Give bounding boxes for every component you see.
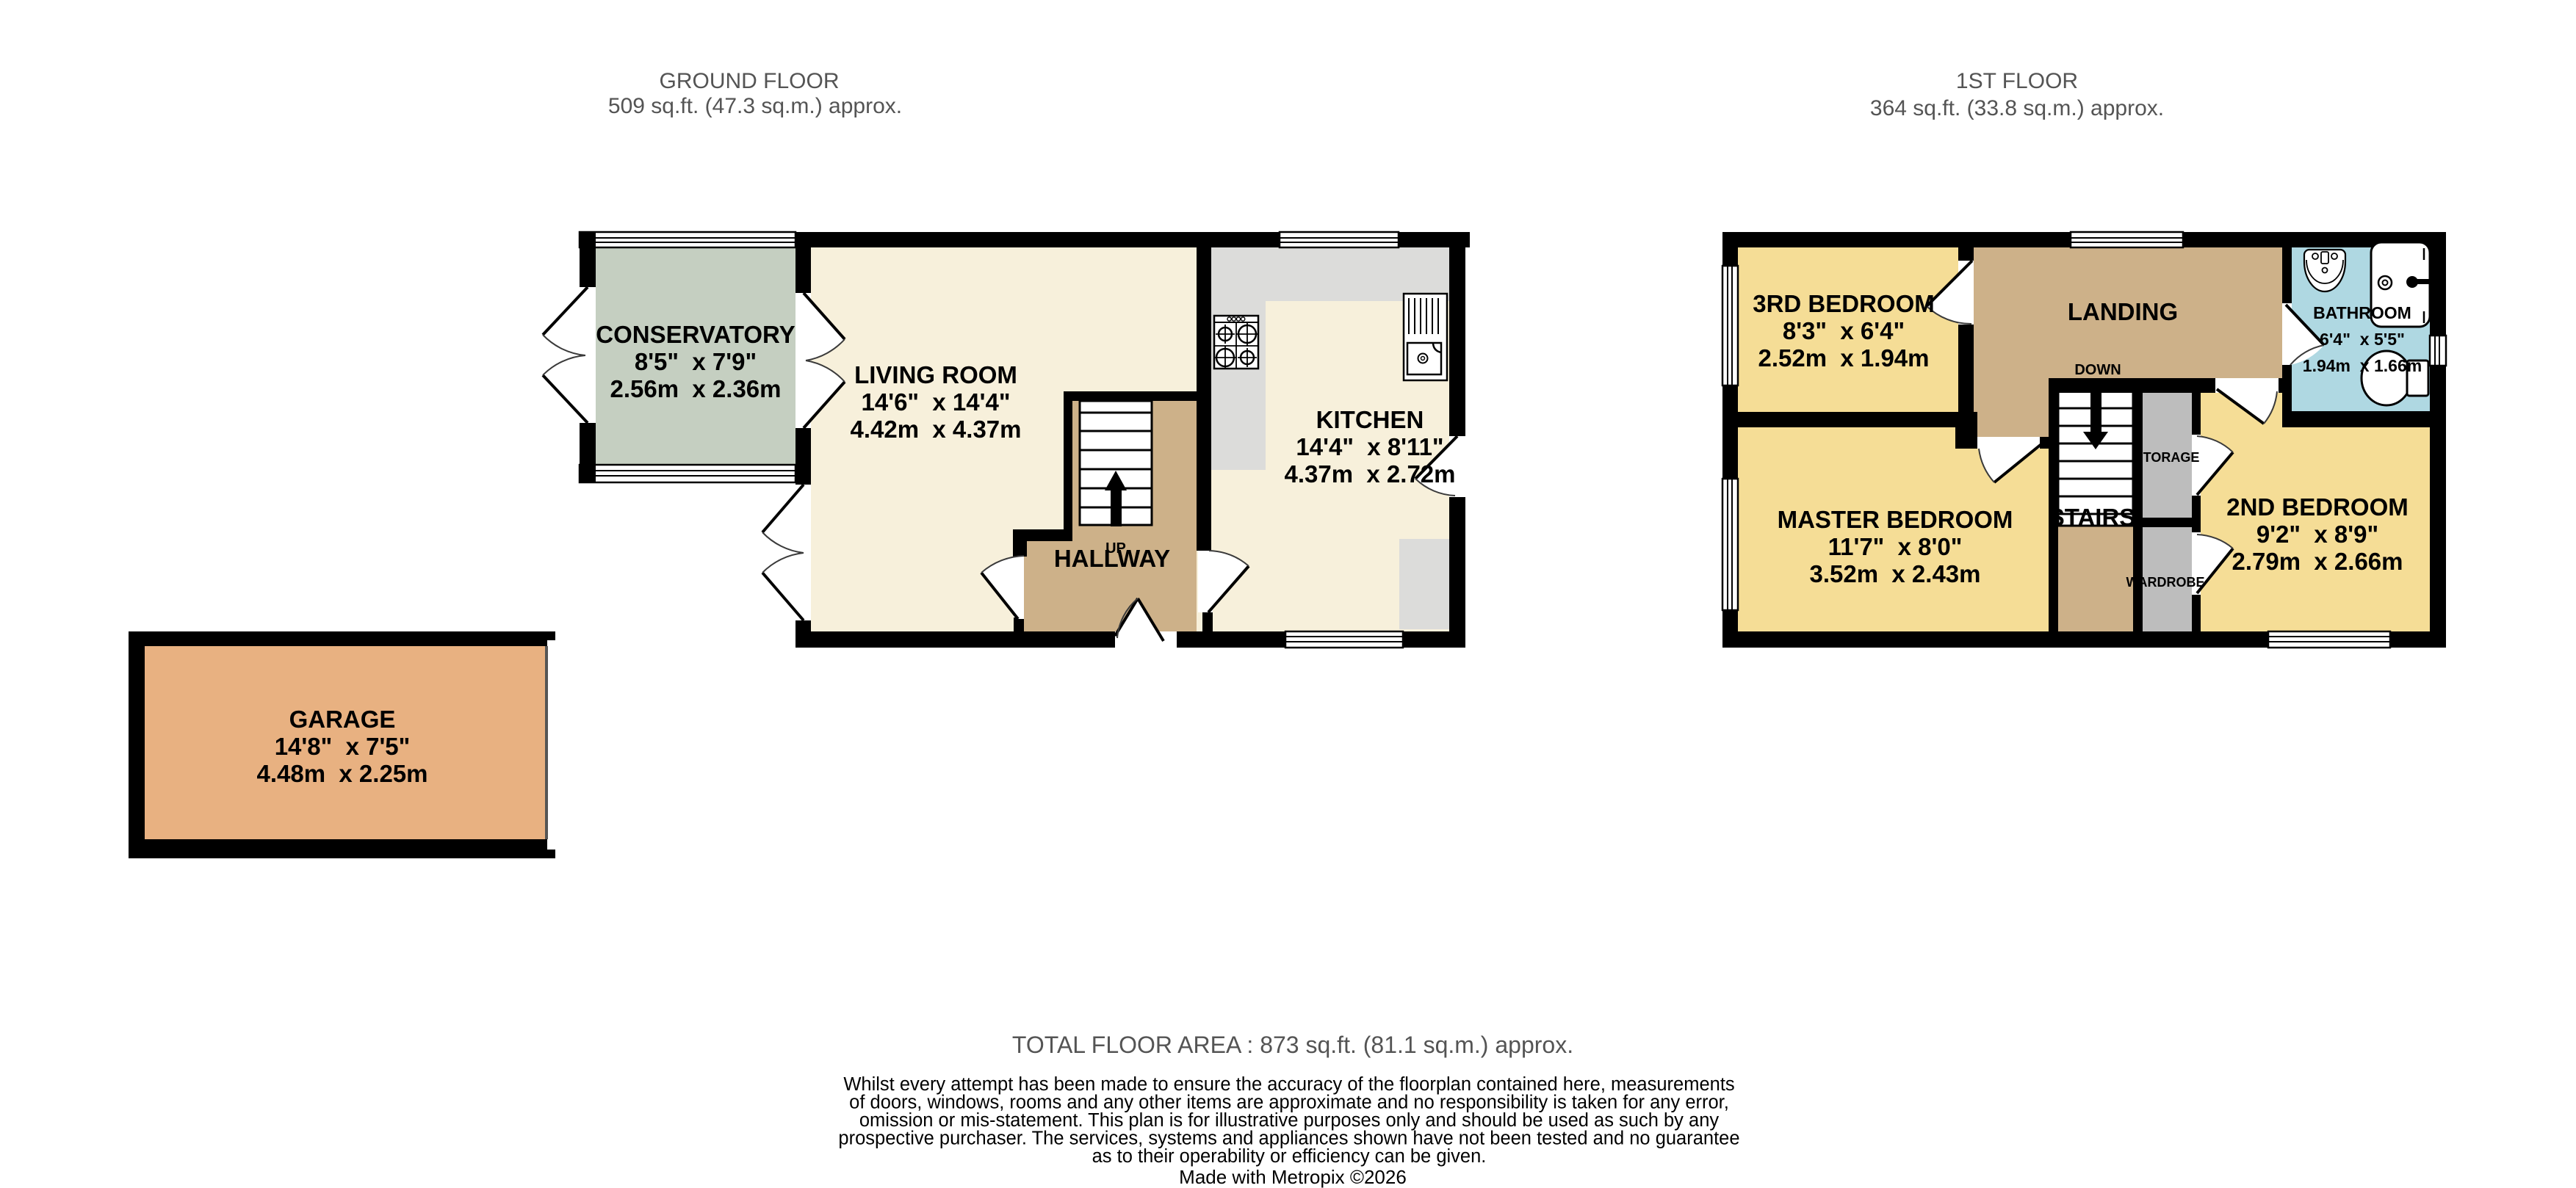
svg-text:14'4" x 8'11": 14'4" x 8'11" — [1296, 433, 1443, 460]
svg-text:STAIRS: STAIRS — [2049, 504, 2136, 531]
svg-text:1ST FLOOR: 1ST FLOOR — [1956, 69, 2078, 93]
svg-text:8'5" x 7'9": 8'5" x 7'9" — [635, 348, 757, 375]
svg-text:KITCHEN: KITCHEN — [1316, 406, 1424, 433]
svg-text:HALLWAY: HALLWAY — [1054, 545, 1170, 572]
svg-text:MASTER BEDROOM: MASTER BEDROOM — [1778, 506, 2013, 533]
svg-text:BATHROOM: BATHROOM — [2313, 303, 2411, 322]
svg-text:TOTAL FLOOR AREA : 873 sq.ft.: TOTAL FLOOR AREA : 873 sq.ft. (81.1 sq.m… — [1012, 1032, 1573, 1058]
svg-text:6'4" x 5'5": 6'4" x 5'5" — [2320, 330, 2405, 349]
svg-text:STORAGE: STORAGE — [2135, 450, 2200, 465]
svg-text:14'8" x 7'5": 14'8" x 7'5" — [275, 733, 411, 760]
svg-text:LANDING: LANDING — [2068, 298, 2178, 325]
svg-text:8'3" x 6'4": 8'3" x 6'4" — [1783, 317, 1905, 344]
svg-text:2.52m x 1.94m: 2.52m x 1.94m — [1758, 344, 1930, 372]
svg-text:GARAGE: GARAGE — [289, 706, 396, 733]
svg-text:4.37m x 2.72m: 4.37m x 2.72m — [1285, 460, 1456, 488]
svg-text:11'7" x 8'0": 11'7" x 8'0" — [1828, 533, 1963, 560]
svg-text:9'2" x 8'9": 9'2" x 8'9" — [2256, 521, 2378, 548]
svg-text:2ND BEDROOM: 2ND BEDROOM — [2226, 493, 2409, 521]
svg-text:1.94m x 1.66m: 1.94m x 1.66m — [2303, 356, 2422, 375]
svg-text:WARDROBE: WARDROBE — [2126, 575, 2205, 590]
svg-text:CONSERVATORY: CONSERVATORY — [596, 321, 795, 348]
svg-text:4.42m x 4.37m: 4.42m x 4.37m — [851, 416, 1022, 443]
svg-text:Made with Metropix ©2026: Made with Metropix ©2026 — [1179, 1166, 1407, 1188]
svg-text:GROUND FLOOR: GROUND FLOOR — [659, 69, 839, 93]
svg-text:364 sq.ft. (33.8 sq.m.) approx: 364 sq.ft. (33.8 sq.m.) approx. — [1870, 96, 2164, 120]
svg-text:as to their operability or eff: as to their operability or efficiency ca… — [1092, 1146, 1487, 1167]
svg-text:DOWN: DOWN — [2074, 362, 2121, 378]
svg-text:2.79m x 2.66m: 2.79m x 2.66m — [2232, 548, 2403, 575]
svg-text:4.48m x 2.25m: 4.48m x 2.25m — [257, 760, 428, 787]
svg-text:LIVING ROOM: LIVING ROOM — [854, 361, 1017, 388]
svg-text:509 sq.ft. (47.3 sq.m.) approx: 509 sq.ft. (47.3 sq.m.) approx. — [608, 94, 902, 118]
svg-text:3RD BEDROOM: 3RD BEDROOM — [1753, 290, 1935, 317]
svg-text:14'6" x 14'4": 14'6" x 14'4" — [862, 388, 1011, 416]
svg-text:2.56m x 2.36m: 2.56m x 2.36m — [610, 375, 782, 402]
svg-text:3.52m x 2.43m: 3.52m x 2.43m — [1810, 560, 1981, 587]
